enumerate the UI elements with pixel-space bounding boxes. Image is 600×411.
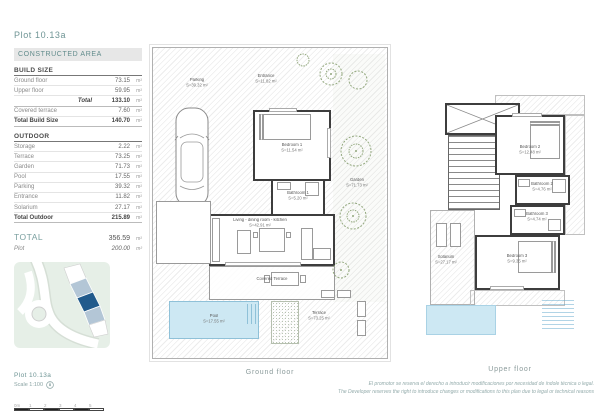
sink-icon xyxy=(277,182,291,190)
table-row: Total Outdoor215.89m² xyxy=(14,213,142,223)
plot-size-label: Plot xyxy=(14,246,98,252)
row-label: Solarium xyxy=(14,205,98,211)
table-row: Total133.10m² xyxy=(14,96,142,106)
disclaimer-line-en: The Developer reserves the right to intr… xyxy=(338,388,594,396)
row-label: Covered terrace xyxy=(14,108,98,114)
row-value: 17.55 xyxy=(98,174,130,180)
upper-floor-plan: Bedroom 2S=12.48 m² Bathroom 2S=4.76 m² … xyxy=(430,95,590,345)
table-row: Pool17.55m² xyxy=(14,173,142,183)
row-value: 27.17 xyxy=(98,205,130,211)
table-row: Garden71.73m² xyxy=(14,162,142,172)
table-row: Covered terrace7.60m² xyxy=(14,107,142,117)
row-value: 71.73 xyxy=(98,164,130,170)
site-location-map xyxy=(14,262,142,348)
row-label: Total Outdoor xyxy=(14,215,98,221)
sofa-icon xyxy=(313,248,331,260)
room-label-covered-terrace: Covered Terrace xyxy=(248,277,297,282)
upper-floor-caption: Upper floor xyxy=(430,366,590,373)
window xyxy=(512,113,542,117)
chair-icon xyxy=(300,275,306,283)
row-value: 73.15 xyxy=(98,78,130,84)
room-label-bedroom2: Bedroom 2S=12.48 m² xyxy=(506,145,555,156)
row-unit: m² xyxy=(130,118,142,124)
row-value: 140.70 xyxy=(98,118,130,124)
room-label-parking: ParkingS=39.32 m² xyxy=(173,78,222,89)
north-compass-icon xyxy=(46,381,54,389)
table-row: Solarium27.17m² xyxy=(14,203,142,213)
row-unit: m² xyxy=(130,78,142,84)
table-row: Parking39.32m² xyxy=(14,183,142,193)
row-value: 2.22 xyxy=(98,144,130,150)
window xyxy=(225,262,301,266)
ground-floor-caption: Ground floor xyxy=(152,369,388,376)
map-scale-row: Scale 1:100 xyxy=(14,381,142,389)
row-value: 59.95 xyxy=(98,88,130,94)
pool-reflection-lines xyxy=(542,300,574,330)
row-label: Terrace xyxy=(14,154,98,160)
row-unit: m² xyxy=(130,215,142,221)
room-label-bathroom3: Bathroom 3S=4.74 m² xyxy=(513,212,562,223)
sun-lounger-icon xyxy=(321,290,335,298)
row-label: Pool xyxy=(14,174,98,180)
row-value: 215.89 xyxy=(98,215,130,221)
bed-icon xyxy=(259,114,311,140)
table-row: Terrace73.25m² xyxy=(14,152,142,162)
row-label: Parking xyxy=(14,184,98,190)
table-row: Entrance11.82m² xyxy=(14,193,142,203)
window xyxy=(269,108,297,112)
table-row: Storage2.22m² xyxy=(14,142,142,152)
table-row: Total Build Size140.70m² xyxy=(14,117,142,127)
sun-lounger-icon xyxy=(337,290,351,298)
outdoor-title: OUTDOOR xyxy=(14,133,142,142)
room-label-bathroom2: Bathroom 2S=4.76 m² xyxy=(518,182,567,193)
room-label-bedroom3: Bedroom 3S=9.35 m² xyxy=(493,254,542,265)
plot-size-value: 200.00 xyxy=(98,246,130,252)
plot-size-unit: m² xyxy=(130,246,142,252)
pool-steps xyxy=(247,304,257,324)
room-label-entrance: EntranceS=11.82 m² xyxy=(242,74,291,85)
grand-total-row: TOTAL 356.59 m² xyxy=(14,232,142,242)
row-unit: m² xyxy=(130,108,142,114)
page-title: Plot 10.13a xyxy=(14,30,142,40)
sofa-icon xyxy=(301,228,313,260)
dining-table-icon xyxy=(259,228,285,252)
room-storage xyxy=(156,201,211,264)
site-map-graphic xyxy=(14,262,110,348)
chair-icon xyxy=(253,232,258,238)
constructed-area-header: CONSTRUCTED AREA xyxy=(14,48,142,61)
row-unit: m² xyxy=(130,205,142,211)
row-label: Entrance xyxy=(14,194,98,200)
row-unit: m² xyxy=(130,184,142,190)
room-label-bathroom1: Bathroom 1S=5.20 m² xyxy=(274,191,323,202)
pool-below-outline xyxy=(426,305,496,335)
sun-lounger-icon xyxy=(436,223,447,247)
room-label-terrace: TerraceS=73.25 m² xyxy=(295,311,344,322)
row-unit: m² xyxy=(130,174,142,180)
kitchen-counter-icon xyxy=(212,218,220,262)
row-unit: m² xyxy=(130,194,142,200)
row-label: Total xyxy=(14,98,98,104)
plot-size-row: Plot 200.00 m² xyxy=(14,246,142,252)
row-value: 7.60 xyxy=(98,108,130,114)
sun-lounger-icon xyxy=(357,301,366,317)
row-value: 133.10 xyxy=(98,98,130,104)
room-label-garden: GardenS=71.73 m² xyxy=(333,178,382,189)
room-label-bedroom1: Bedroom 1S=11.54 m² xyxy=(268,143,317,154)
ground-floor-plan: ParkingS=39.32 m² EntranceS=11.82 m² Gar… xyxy=(152,47,388,359)
sun-lounger-icon xyxy=(450,223,461,247)
grand-total-label: TOTAL xyxy=(14,232,98,242)
row-value: 73.25 xyxy=(98,154,130,160)
disclaimer: El promotor se reserva el derecho a intr… xyxy=(338,380,594,396)
room-label-living: Living - dining room - kitchenS=42.91 m² xyxy=(225,218,295,229)
row-label: Upper floor xyxy=(14,88,98,94)
room-label-pool: PoolS=17.55 m² xyxy=(190,314,239,325)
window xyxy=(490,286,524,290)
outdoor-table: OUTDOOR Storage2.22m² Terrace73.25m² Gar… xyxy=(14,133,142,224)
disclaimer-line-es: El promotor se reserva el derecho a intr… xyxy=(338,380,594,388)
row-unit: m² xyxy=(130,154,142,160)
deck-area xyxy=(271,301,299,344)
build-size-title: BUILD SIZE xyxy=(14,67,142,76)
map-scale-text: Scale 1:100 xyxy=(14,382,43,388)
grand-total-value: 356.59 xyxy=(98,235,130,242)
chair-icon xyxy=(286,232,291,238)
row-label: Ground floor xyxy=(14,78,98,84)
table-row: Upper floor59.95m² xyxy=(14,86,142,96)
summary-panel: Plot 10.13a CONSTRUCTED AREA BUILD SIZE … xyxy=(14,30,142,411)
staircase xyxy=(448,135,500,210)
row-value: 39.32 xyxy=(98,184,130,190)
row-value: 11.82 xyxy=(98,194,130,200)
room-label-solarium: SolariumS=27.17 m² xyxy=(425,255,467,266)
sun-lounger-icon xyxy=(357,320,366,336)
row-unit: m² xyxy=(130,144,142,150)
row-label: Total Build Size xyxy=(14,118,98,124)
kitchen-island-icon xyxy=(237,230,251,254)
row-unit: m² xyxy=(130,98,142,104)
car-icon xyxy=(173,106,211,208)
table-row: Ground floor73.15m² xyxy=(14,76,142,86)
map-caption-title: Plot 10.13a xyxy=(14,372,142,379)
row-unit: m² xyxy=(130,164,142,170)
row-label: Storage xyxy=(14,144,98,150)
grand-total-unit: m² xyxy=(130,236,142,242)
row-label: Garden xyxy=(14,164,98,170)
row-unit: m² xyxy=(130,88,142,94)
window xyxy=(327,128,331,158)
build-size-table: BUILD SIZE Ground floor73.15m² Upper flo… xyxy=(14,67,142,127)
